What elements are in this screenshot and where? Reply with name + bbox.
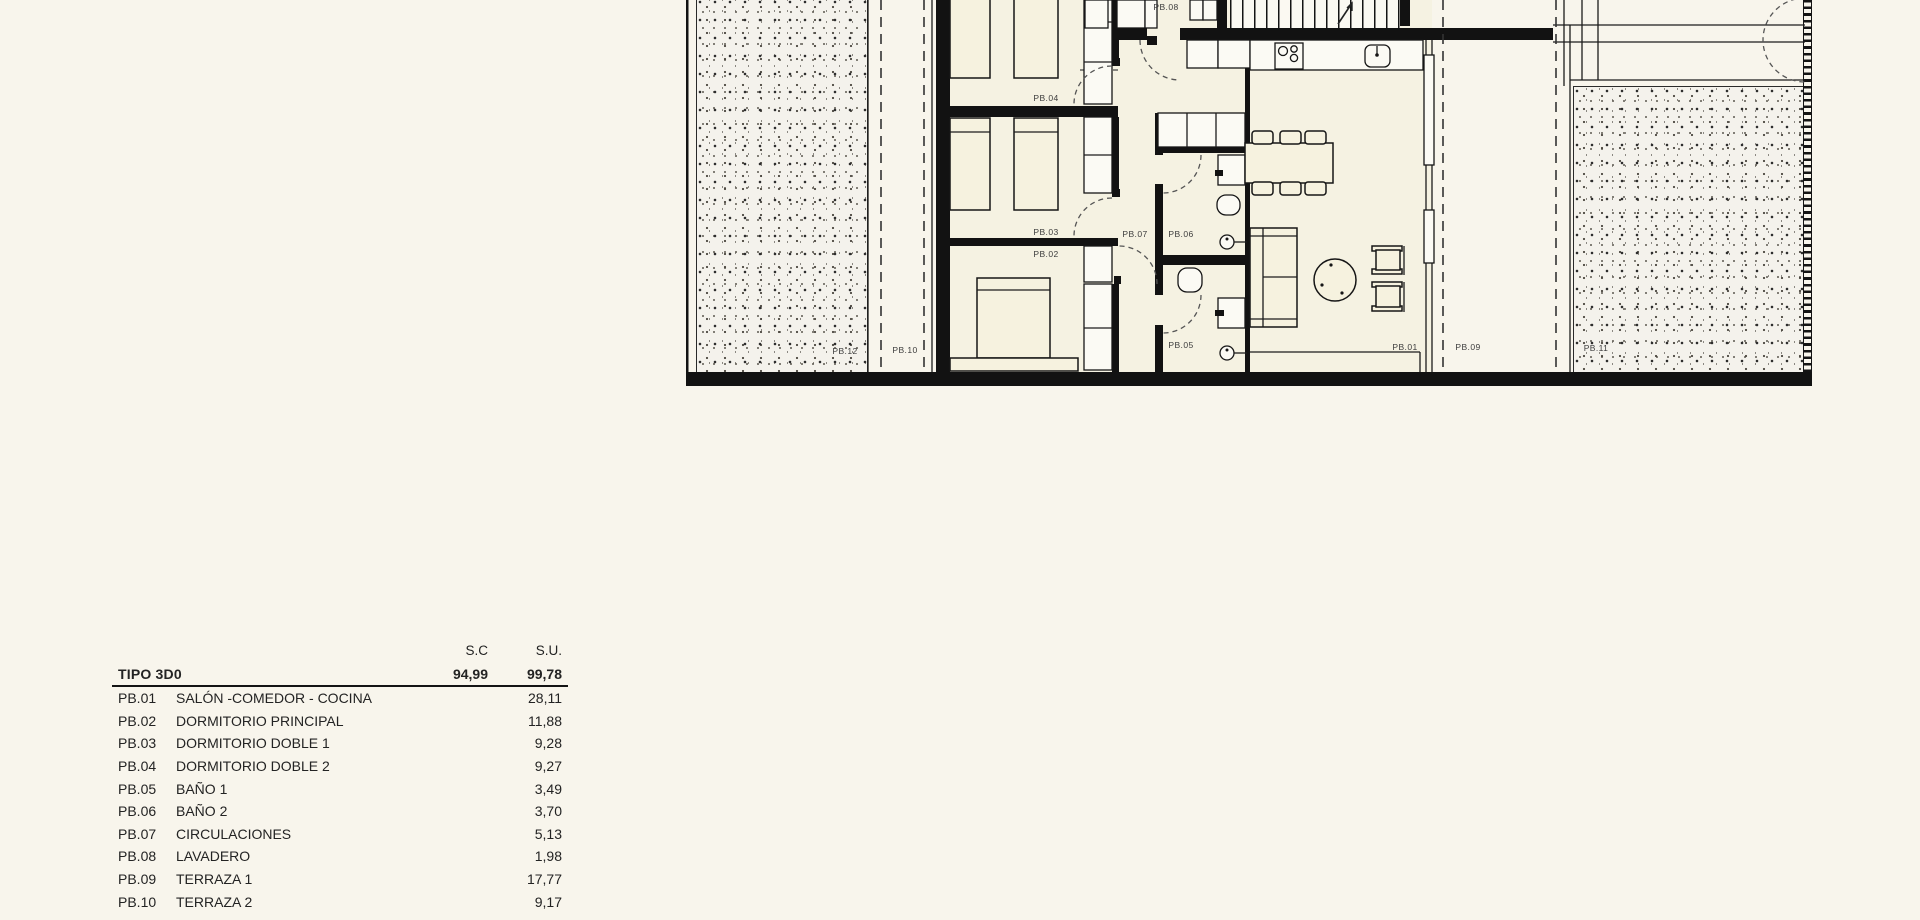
room-name: LAVADERO xyxy=(176,845,390,868)
plan-linework xyxy=(686,0,1812,390)
room-label-pb03: PB.03 xyxy=(1033,227,1058,237)
cooktop-icon xyxy=(1275,43,1303,69)
table-header: S.C S.U. xyxy=(112,640,568,663)
table-row: PB.06BAÑO 23,70 xyxy=(112,800,568,823)
room-code: PB.04 xyxy=(112,755,176,778)
room-label-pb04: PB.04 xyxy=(1033,93,1058,103)
room-label-pb06: PB.06 xyxy=(1168,229,1193,239)
window-pane xyxy=(1424,210,1434,263)
room-sc xyxy=(390,823,490,846)
room-code: PB.05 xyxy=(112,778,176,801)
area-table: S.C S.U. TIPO 3D0 94,99 99,78 PB.01SALÓN… xyxy=(112,640,568,913)
room-su: 28,11 xyxy=(490,687,568,710)
living-furniture xyxy=(1245,131,1404,327)
room-sc xyxy=(390,687,490,710)
room-sc xyxy=(390,845,490,868)
room-label-pb12: PB.12 xyxy=(832,346,857,356)
room-name: BAÑO 1 xyxy=(176,778,390,801)
room-name: DORMITORIO PRINCIPAL xyxy=(176,710,390,733)
washbasin-icon xyxy=(1220,235,1234,249)
room-label-pb02: PB.02 xyxy=(1033,249,1058,259)
toilet-icon xyxy=(1178,268,1202,292)
room-sc xyxy=(390,868,490,891)
room-sc xyxy=(390,732,490,755)
kitchen-fixtures xyxy=(1250,40,1423,70)
room-sc xyxy=(390,891,490,914)
room-code: PB.03 xyxy=(112,732,176,755)
room-sc xyxy=(390,800,490,823)
floor-plan: PB.01 PB.02 PB.03 PB.04 PB.05 PB.06 PB.0… xyxy=(686,0,1812,390)
page: { "colors": { "paper": "#f8f5ec", "ink":… xyxy=(0,0,1920,920)
dining-table xyxy=(1245,143,1333,183)
room-su: 9,28 xyxy=(490,732,568,755)
room-code: PB.08 xyxy=(112,845,176,868)
bedroom-furniture xyxy=(950,0,1078,371)
room-name: BAÑO 2 xyxy=(176,800,390,823)
room-code: PB.10 xyxy=(112,891,176,914)
coffee-table xyxy=(1314,259,1356,301)
table-row: PB.02DORMITORIO PRINCIPAL11,88 xyxy=(112,710,568,733)
toilet-icon xyxy=(1217,195,1240,215)
room-name: DORMITORIO DOBLE 2 xyxy=(176,755,390,778)
area-table-rows: PB.01SALÓN -COMEDOR - COCINA28,11PB.02DO… xyxy=(112,687,568,913)
room-code: PB.09 xyxy=(112,868,176,891)
room-su: 3,49 xyxy=(490,778,568,801)
room-sc xyxy=(390,778,490,801)
table-row: PB.05BAÑO 13,49 xyxy=(112,778,568,801)
room-code: PB.02 xyxy=(112,710,176,733)
table-type-row: TIPO 3D0 94,99 99,78 xyxy=(112,663,568,688)
room-su: 17,77 xyxy=(490,868,568,891)
room-code: PB.07 xyxy=(112,823,176,846)
col-header-sc: S.C xyxy=(390,640,490,663)
room-label-pb05: PB.05 xyxy=(1168,340,1193,350)
table-row: PB.08LAVADERO1,98 xyxy=(112,845,568,868)
room-su: 9,27 xyxy=(490,755,568,778)
type-label: TIPO 3D0 xyxy=(112,663,390,686)
washbasin-icon xyxy=(1220,346,1234,360)
room-name: TERRAZA 2 xyxy=(176,891,390,914)
table-row: PB.01SALÓN -COMEDOR - COCINA28,11 xyxy=(112,687,568,710)
table-row: PB.03DORMITORIO DOBLE 19,28 xyxy=(112,732,568,755)
room-label-pb07: PB.07 xyxy=(1122,229,1147,239)
room-name: CIRCULACIONES xyxy=(176,823,390,846)
room-su: 5,13 xyxy=(490,823,568,846)
room-code: PB.06 xyxy=(112,800,176,823)
room-label-pb09: PB.09 xyxy=(1455,342,1480,352)
room-label-pb08: PB.08 xyxy=(1153,2,1178,12)
room-su: 9,17 xyxy=(490,891,568,914)
bed-single xyxy=(950,0,990,78)
room-su: 1,98 xyxy=(490,845,568,868)
table-row: PB.09TERRAZA 117,77 xyxy=(112,868,568,891)
chair xyxy=(1252,131,1273,144)
room-label-pb11: PB.11 xyxy=(1584,343,1609,353)
bed-bench xyxy=(950,358,1078,371)
room-code: PB.01 xyxy=(112,687,176,710)
room-name: DORMITORIO DOBLE 1 xyxy=(176,732,390,755)
room-name: TERRAZA 1 xyxy=(176,868,390,891)
chair xyxy=(1305,131,1326,144)
room-sc xyxy=(390,755,490,778)
room-label-pb10: PB.10 xyxy=(892,345,917,355)
window-pane xyxy=(1424,55,1434,165)
table-row: PB.04DORMITORIO DOBLE 29,27 xyxy=(112,755,568,778)
room-sc xyxy=(390,710,490,733)
windows xyxy=(1424,55,1434,263)
room-su: 11,88 xyxy=(490,710,568,733)
stairs-arrow xyxy=(1338,3,1352,24)
col-header-su: S.U. xyxy=(490,640,568,663)
bed-single xyxy=(1014,0,1058,78)
type-su-total: 99,78 xyxy=(490,663,568,686)
room-name: SALÓN -COMEDOR - COCINA xyxy=(176,687,390,710)
chair xyxy=(1305,182,1326,195)
room-label-pb01: PB.01 xyxy=(1392,342,1417,352)
chair xyxy=(1252,182,1273,195)
room-su: 3,70 xyxy=(490,800,568,823)
chair xyxy=(1280,131,1301,144)
chair xyxy=(1280,182,1301,195)
table-row: PB.07CIRCULACIONES5,13 xyxy=(112,823,568,846)
type-sc-total: 94,99 xyxy=(390,663,490,686)
table-row: PB.10TERRAZA 29,17 xyxy=(112,891,568,914)
